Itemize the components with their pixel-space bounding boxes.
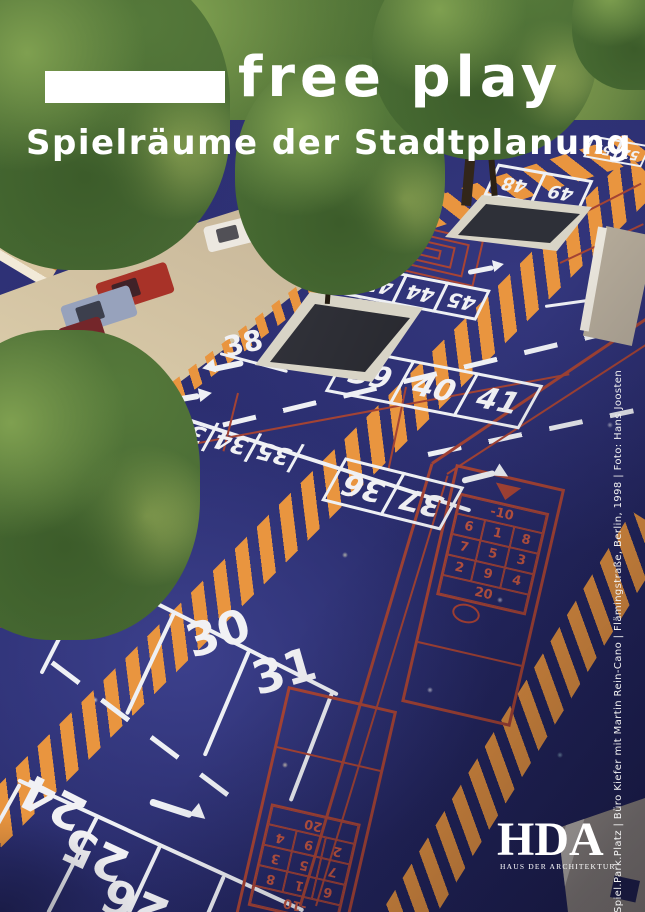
poster-title: free play [238, 50, 562, 106]
arrow-head-icon [198, 386, 213, 402]
magic-square-board: -10 6 1 8 7 5 3 2 9 4 [234, 686, 397, 912]
hda-logo-subtitle: HAUS DER ARCHITEKTUR [500, 862, 616, 871]
lane-arrow-curved [149, 798, 193, 818]
arrow-head-icon [189, 803, 211, 825]
tree-planter [250, 288, 430, 388]
parking-row-36-37: 36 37 [324, 458, 465, 530]
board-divider [277, 746, 381, 772]
poster-subtitle: Spielräume der Stadtplanung [26, 126, 632, 160]
parking-line [203, 650, 251, 757]
arrow-head-icon [201, 359, 217, 375]
hda-logo: HDA [497, 816, 604, 864]
title-bar [45, 71, 225, 103]
parking-number: 36 [335, 466, 393, 508]
board-divider [418, 641, 522, 667]
parking-number: 35 [251, 436, 297, 469]
parking-number: 37 [393, 480, 451, 522]
flipped-board-content: -10 6 1 8 7 5 3 2 9 4 [237, 695, 392, 912]
arrow-head-icon [492, 258, 505, 272]
parking-line [180, 875, 226, 912]
magic-square-grid: -10 6 1 8 7 5 3 2 9 4 [248, 803, 361, 912]
parking-number: 41 [468, 381, 527, 421]
photo-credit: Spiel.Park.Platz | Büro Kiefer mit Marti… [613, 393, 624, 912]
parking-number: 45 [442, 287, 480, 315]
magic-square-grid: -10 6 1 8 7 5 3 2 9 4 20 [436, 493, 549, 616]
car-window [216, 225, 240, 244]
board-triangle-icon [492, 482, 521, 502]
poster: -10 6 1 8 7 5 3 2 9 4 20 [0, 0, 645, 912]
